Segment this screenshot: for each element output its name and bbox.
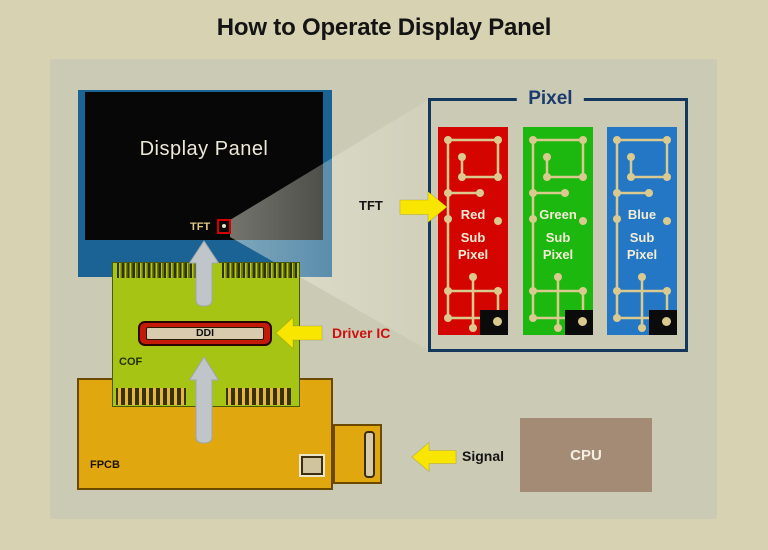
red-subpixel: Red Sub Pixel <box>438 127 508 335</box>
green-subpixel: Green Sub Pixel <box>523 127 593 335</box>
tft-point-marker <box>217 219 231 234</box>
cof-bottom-connector-right <box>226 388 291 405</box>
cof-top-connector-right <box>222 263 298 278</box>
subpixel-name: Red <box>438 207 508 222</box>
subpixel-line2: Sub <box>523 230 593 245</box>
display-panel-label: Display Panel <box>85 138 323 161</box>
signal-label: Signal <box>462 448 504 464</box>
tft-transistor-square <box>480 310 508 335</box>
cof-label: COF <box>119 356 142 368</box>
subpixel-line3: Pixel <box>438 247 508 262</box>
infographic-canvas: How to Operate Display Panel Display Pan… <box>0 0 768 550</box>
subpixel-name: Blue <box>607 207 677 222</box>
tft-transistor-dot-icon <box>493 317 502 326</box>
tft-transistor-dot-icon <box>578 317 587 326</box>
tft-transistor-square <box>649 310 677 335</box>
subpixel-line3: Pixel <box>523 247 593 262</box>
display-panel-screen <box>85 92 323 240</box>
tft-label-on-panel: TFT <box>190 221 210 233</box>
subpixel-name: Green <box>523 207 593 222</box>
subpixel-line2: Sub <box>607 230 677 245</box>
cof-bottom-connector-left <box>116 388 186 405</box>
tft-transistor-dot-icon <box>662 317 671 326</box>
tft-label-at-inset: TFT <box>359 198 383 213</box>
pixel-inset-box: Pixel Red Sub Pixel Green Sub Pixel Blue… <box>428 98 688 352</box>
subpixel-line3: Pixel <box>607 247 677 262</box>
blue-subpixel: Blue Sub Pixel <box>607 127 677 335</box>
page-title: How to Operate Display Panel <box>0 14 768 42</box>
cpu-label: CPU <box>570 447 602 464</box>
fpcb-component-chip <box>301 456 323 475</box>
tft-point-dot-icon <box>222 224 226 228</box>
fpcb-label: FPCB <box>90 459 120 471</box>
tft-transistor-square <box>565 310 593 335</box>
ddi-chip: DDI <box>146 327 264 340</box>
subpixel-line2: Sub <box>438 230 508 245</box>
driver-ic-label: Driver IC <box>332 325 390 341</box>
pixel-inset-title: Pixel <box>517 88 583 110</box>
cpu-block: CPU <box>520 418 652 492</box>
fpcb-connector-slot <box>364 431 375 478</box>
cof-top-connector-left <box>117 263 197 278</box>
